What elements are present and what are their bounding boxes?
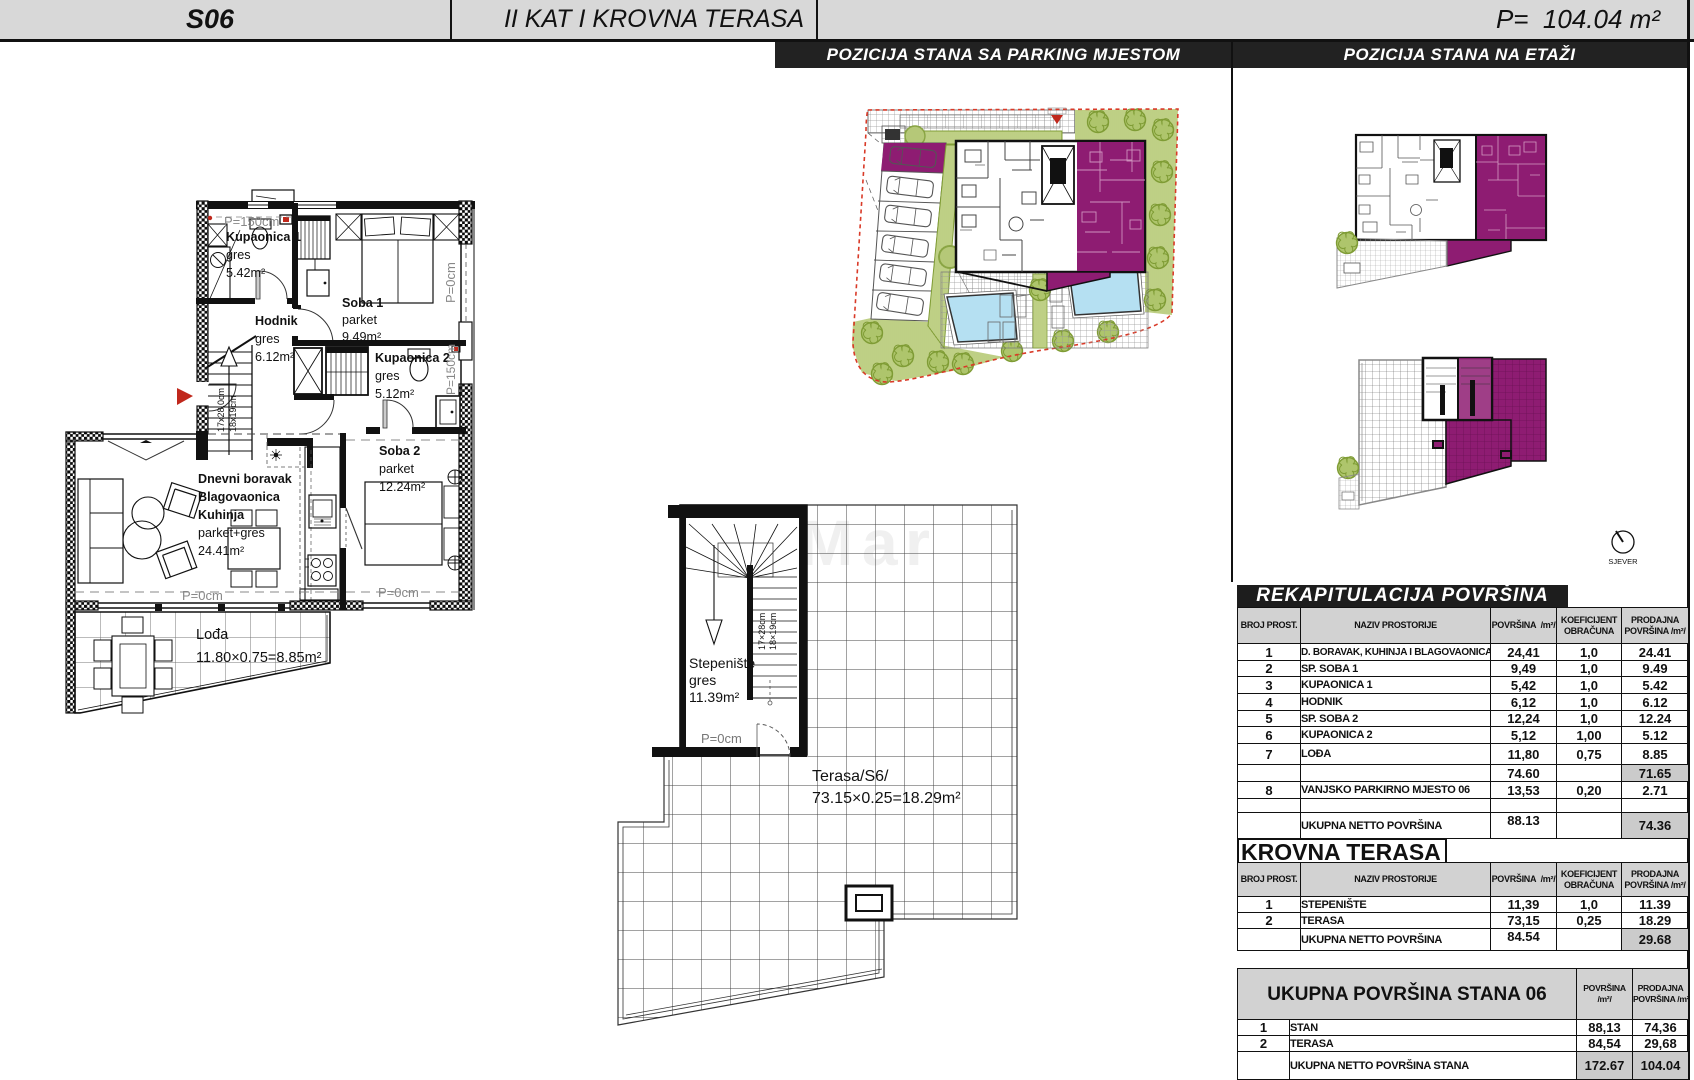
svg-text:SJEVER: SJEVER	[1608, 557, 1638, 566]
svg-text:parket+gres: parket+gres	[198, 526, 265, 540]
svg-text:Terasa/S6/: Terasa/S6/	[812, 768, 889, 785]
svg-text:6.12m²: 6.12m²	[255, 350, 294, 364]
svg-text:gres: gres	[375, 369, 400, 383]
svg-text:17x28.0cm: 17x28.0cm	[216, 388, 226, 432]
svg-text:5.12m²: 5.12m²	[375, 387, 414, 401]
svg-text:P=150cm: P=150cm	[224, 214, 279, 229]
svg-text:P=0cm: P=0cm	[701, 731, 742, 746]
svg-text:gres: gres	[255, 332, 280, 346]
svg-text:parket: parket	[342, 313, 378, 327]
svg-text:18×19cm: 18×19cm	[768, 613, 778, 650]
svg-text:Kupaonica 1: Kupaonica 1	[226, 230, 301, 244]
svg-text:11.80×0.75=8.85m²: 11.80×0.75=8.85m²	[196, 650, 322, 666]
svg-text:Blagovaonica: Blagovaonica	[198, 490, 281, 504]
svg-text:P=150cm: P=150cm	[444, 344, 458, 395]
svg-text:73.15×0.25=18.29m²: 73.15×0.25=18.29m²	[812, 790, 961, 807]
svg-text:12.24m²: 12.24m²	[379, 480, 425, 494]
svg-text:Hodnik: Hodnik	[255, 314, 299, 328]
svg-text:18x19cm: 18x19cm	[228, 395, 238, 432]
svg-text:gres: gres	[689, 672, 716, 688]
svg-text:Lođa: Lođa	[196, 627, 229, 643]
svg-text:parket: parket	[379, 462, 415, 476]
svg-text:5.42m²: 5.42m²	[226, 266, 265, 280]
svg-text:Soba 1: Soba 1	[342, 296, 383, 310]
svg-text:gres: gres	[226, 248, 251, 262]
svg-text:P=0cm: P=0cm	[182, 588, 223, 603]
svg-text:9.49m²: 9.49m²	[342, 330, 381, 344]
svg-text:17×28cm: 17×28cm	[757, 613, 767, 650]
svg-text:Dnevni boravak: Dnevni boravak	[198, 472, 293, 486]
svg-text:11.39m²: 11.39m²	[689, 689, 740, 705]
svg-text:Kupaonica 2: Kupaonica 2	[375, 351, 450, 365]
svg-text:P=0cm: P=0cm	[443, 262, 458, 303]
svg-text:Stepenište: Stepenište	[689, 655, 755, 671]
svg-text:P=0cm: P=0cm	[378, 585, 419, 600]
svg-text:24.41m²: 24.41m²	[198, 544, 244, 558]
svg-text:Kuhinja: Kuhinja	[198, 508, 245, 522]
svg-text:Soba 2: Soba 2	[379, 444, 420, 458]
